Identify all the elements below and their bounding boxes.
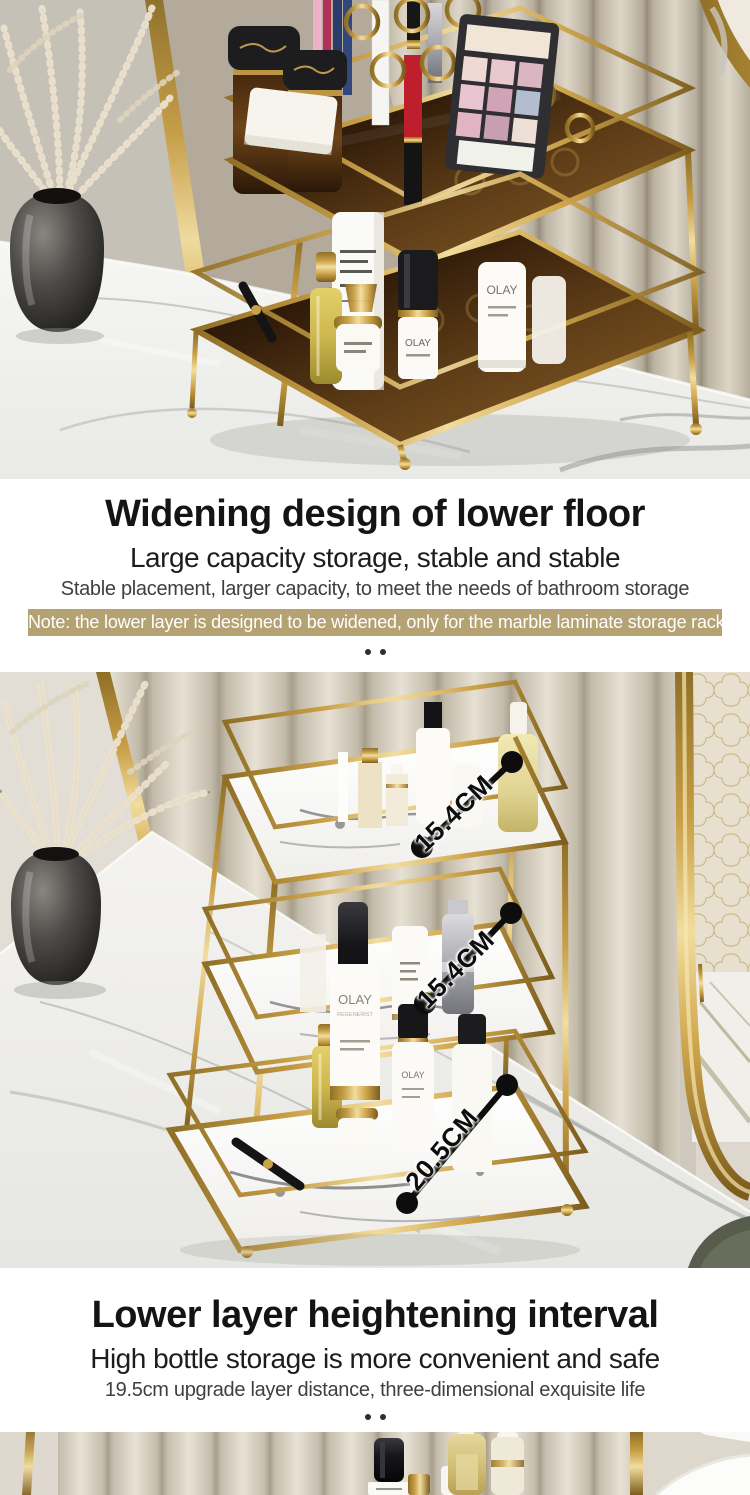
section1-title: Widening design of lower floor: [0, 495, 750, 535]
feature-section-heightening: Lower layer heightening interval High bo…: [0, 1268, 750, 1432]
cream-tube: [358, 762, 382, 828]
small-spray-bottle: [386, 774, 408, 826]
brand-label-regenerist: REGENERIST: [337, 1012, 373, 1018]
pink-brush: [313, 0, 322, 52]
white-bottle: [300, 934, 326, 1012]
section2-title: Lower layer heightening interval: [0, 1296, 750, 1336]
product-detail-page: OLAY OLAY Widening design of lower floor…: [0, 0, 750, 1495]
rack-foot: [561, 1204, 573, 1216]
section1-note-banner: Note: the lower layer is designed to be …: [28, 609, 722, 636]
photo-bottom-strip: [0, 1432, 750, 1495]
rack-foot: [399, 458, 411, 470]
black-pen: [407, 0, 420, 40]
brand-label-olay: OLAY: [401, 1070, 424, 1080]
gold-lipstick: [408, 1474, 430, 1495]
dot-icon: [365, 1414, 371, 1420]
white-pen: [338, 752, 348, 822]
brand-label-olay: OLAY: [405, 338, 431, 349]
brand-label-olay: OLAY: [486, 283, 517, 297]
cream-jar: [336, 324, 380, 372]
black-cap-bottle: [374, 1438, 404, 1482]
olay-regenerist-bottle: [330, 964, 380, 1100]
makeup-palette: [444, 13, 560, 179]
olay-bottle: [478, 262, 526, 372]
feature-section-widening: Widening design of lower floor Large cap…: [0, 479, 750, 672]
brand-label-olay: OLAY: [338, 992, 372, 1007]
white-bottle: [532, 276, 566, 364]
cream-jar: [338, 1118, 376, 1148]
rack-foot: [187, 408, 197, 418]
separator-dots: [0, 649, 750, 655]
red-lip-liner: [404, 55, 422, 137]
rack-foot: [690, 423, 702, 435]
dot-icon: [365, 649, 371, 655]
tier1-products: [228, 0, 593, 205]
section1-description: Stable placement, larger capacity, to me…: [0, 579, 750, 600]
section2-subtitle: High bottle storage is more convenient a…: [0, 1344, 750, 1373]
photo-three-tier-rack-measurements: OLAY REGENERIST OLAY: [0, 672, 750, 1268]
separator-dots: [0, 1414, 750, 1420]
section1-subtitle: Large capacity storage, stable and stabl…: [0, 543, 750, 572]
dot-icon: [380, 1414, 386, 1420]
dot-icon: [380, 649, 386, 655]
photo-two-tier-rack: OLAY OLAY: [0, 0, 750, 479]
section2-description: 19.5cm upgrade layer distance, three-dim…: [0, 1380, 750, 1401]
white-box: [244, 87, 338, 155]
